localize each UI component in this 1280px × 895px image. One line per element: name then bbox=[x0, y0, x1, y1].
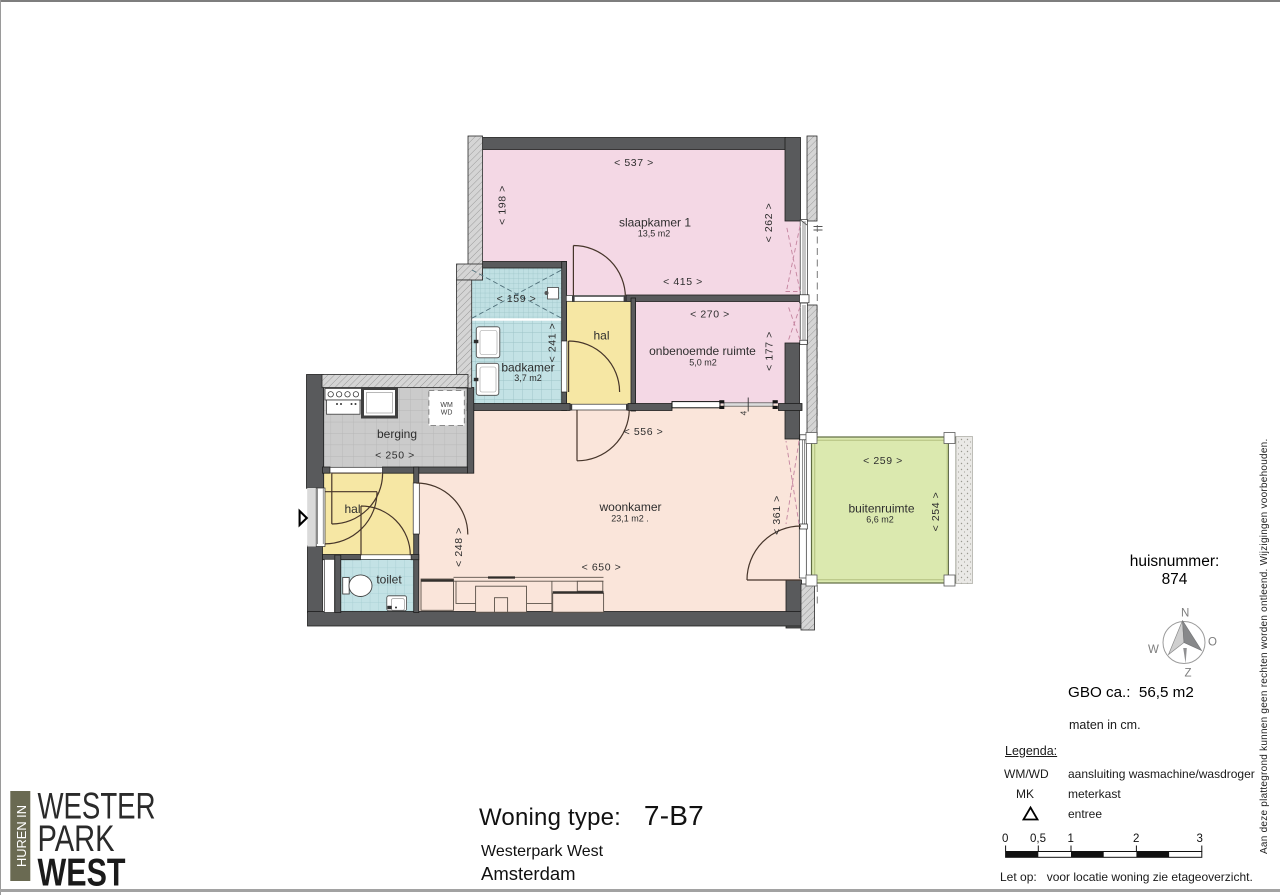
svg-text:< 250 >: < 250 > bbox=[375, 450, 415, 462]
svg-text:W: W bbox=[1148, 644, 1159, 656]
svg-text:< 248 >: < 248 > bbox=[453, 527, 465, 567]
svg-text:< 241 >: < 241 > bbox=[547, 323, 559, 363]
svg-text:slaapkamer 1: slaapkamer 1 bbox=[619, 216, 691, 230]
svg-text:WM: WM bbox=[440, 402, 453, 409]
svg-text:N: N bbox=[1181, 608, 1189, 620]
svg-text:hal: hal bbox=[344, 502, 360, 516]
svg-text:< 270 >: < 270 > bbox=[690, 309, 730, 321]
svg-text:berging: berging bbox=[377, 427, 417, 441]
svg-text:2: 2 bbox=[1133, 833, 1139, 845]
svg-text:< 556 >: < 556 > bbox=[624, 426, 664, 438]
svg-text:Z: Z bbox=[1185, 668, 1192, 680]
svg-text:HUREN IN: HUREN IN bbox=[15, 805, 29, 867]
svg-text:< 415 >: < 415 > bbox=[663, 276, 703, 288]
svg-text:1: 1 bbox=[1068, 833, 1074, 845]
svg-text:onbenoemde ruimte: onbenoemde ruimte bbox=[649, 344, 756, 358]
svg-text:< 254 >: < 254 > bbox=[930, 492, 942, 532]
svg-text:3,7 m2: 3,7 m2 bbox=[514, 373, 542, 383]
svg-text:3: 3 bbox=[1197, 833, 1203, 845]
svg-text:< 198 >: < 198 > bbox=[497, 185, 509, 225]
svg-text:< 262 >: < 262 > bbox=[763, 203, 775, 243]
svg-text:23,1 m2 .: 23,1 m2 . bbox=[611, 514, 649, 524]
svg-text:< 650 >: < 650 > bbox=[582, 562, 622, 574]
svg-text:< 159 >: < 159 > bbox=[497, 293, 537, 305]
svg-text:< 259 >: < 259 > bbox=[863, 455, 903, 467]
svg-text:buitenruimte: buitenruimte bbox=[848, 502, 914, 516]
svg-text:0: 0 bbox=[1002, 833, 1008, 845]
svg-text:WD: WD bbox=[441, 410, 453, 417]
svg-text:woonkamer: woonkamer bbox=[598, 500, 661, 514]
svg-text:6,6 m2: 6,6 m2 bbox=[866, 515, 894, 525]
svg-text:WEST: WEST bbox=[38, 852, 126, 895]
svg-text:< 177 >: < 177 > bbox=[764, 331, 776, 371]
svg-text:13,5 m2: 13,5 m2 bbox=[638, 229, 671, 239]
svg-text:< 537 >: < 537 > bbox=[614, 157, 654, 169]
svg-text:toilet: toilet bbox=[376, 573, 402, 587]
svg-text:0,5: 0,5 bbox=[1030, 833, 1046, 845]
svg-text:hal: hal bbox=[593, 329, 609, 343]
svg-text:< 361 >: < 361 > bbox=[771, 495, 783, 535]
svg-text:5,0 m2: 5,0 m2 bbox=[689, 358, 717, 368]
svg-text:O: O bbox=[1208, 637, 1217, 649]
svg-text:4: 4 bbox=[739, 411, 749, 416]
